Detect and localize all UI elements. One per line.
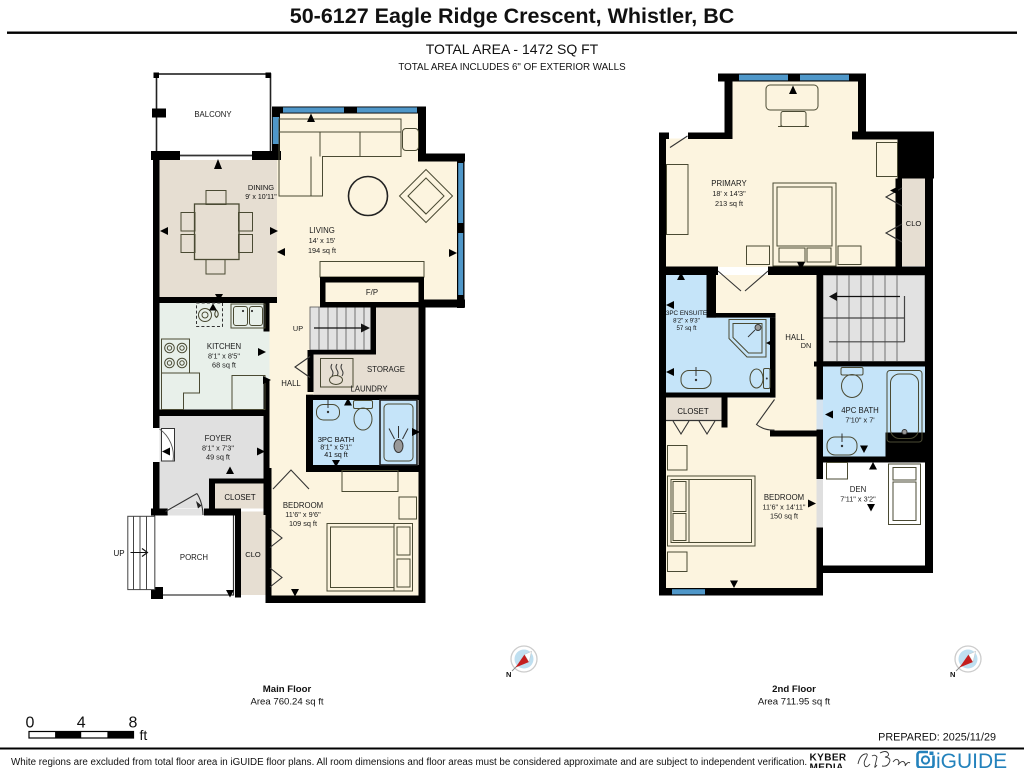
svg-text:7'10" x 7': 7'10" x 7' bbox=[845, 416, 875, 425]
svg-text:Area 711.95 sq ft: Area 711.95 sq ft bbox=[758, 697, 831, 708]
svg-text:11'6" x 9'6": 11'6" x 9'6" bbox=[285, 510, 321, 519]
svg-text:BEDROOM: BEDROOM bbox=[283, 501, 323, 510]
svg-text:PREPARED: 2025/11/29: PREPARED: 2025/11/29 bbox=[878, 732, 996, 744]
svg-text:3PC ENSUITE: 3PC ENSUITE bbox=[666, 310, 707, 317]
svg-text:DN: DN bbox=[801, 341, 812, 350]
svg-text:HALL: HALL bbox=[281, 379, 301, 388]
svg-text:14' x 15': 14' x 15' bbox=[309, 236, 336, 245]
svg-text:PORCH: PORCH bbox=[180, 553, 208, 562]
svg-text:4: 4 bbox=[77, 715, 86, 732]
svg-text:9' x 10'11": 9' x 10'11" bbox=[245, 194, 277, 201]
svg-text:MEDIA: MEDIA bbox=[810, 763, 844, 768]
svg-text:LAUNDRY: LAUNDRY bbox=[350, 385, 388, 394]
svg-text:41 sq ft: 41 sq ft bbox=[324, 450, 348, 459]
svg-text:68 sq ft: 68 sq ft bbox=[212, 361, 236, 370]
svg-text:Main Floor: Main Floor bbox=[263, 684, 312, 695]
svg-text:150 sq ft: 150 sq ft bbox=[770, 512, 798, 521]
svg-text:TOTAL AREA - 1472 SQ FT: TOTAL AREA - 1472 SQ FT bbox=[426, 41, 599, 57]
svg-text:N: N bbox=[506, 670, 511, 679]
svg-text:DEN: DEN bbox=[850, 485, 866, 494]
svg-text:iGUIDE: iGUIDE bbox=[936, 750, 1007, 768]
svg-text:LIVING: LIVING bbox=[309, 226, 335, 235]
svg-text:8'1" x 7'3": 8'1" x 7'3" bbox=[202, 444, 234, 453]
svg-text:11'6" x 14'11": 11'6" x 14'11" bbox=[763, 503, 806, 512]
svg-text:8'1" x 8'5": 8'1" x 8'5" bbox=[208, 352, 240, 361]
svg-text:213 sq ft: 213 sq ft bbox=[715, 199, 743, 208]
svg-text:UP: UP bbox=[113, 549, 124, 558]
svg-text:UP: UP bbox=[293, 324, 303, 333]
svg-text:STORAGE: STORAGE bbox=[367, 365, 405, 374]
svg-text:CLOSET: CLOSET bbox=[224, 493, 255, 502]
svg-text:18' x 14'3": 18' x 14'3" bbox=[712, 189, 746, 198]
svg-text:ft: ft bbox=[140, 727, 148, 743]
svg-text:CLO: CLO bbox=[245, 550, 261, 559]
svg-text:DINING: DINING bbox=[248, 183, 274, 192]
svg-text:4PC BATH: 4PC BATH bbox=[841, 406, 879, 415]
svg-text:KITCHEN: KITCHEN bbox=[207, 342, 241, 351]
svg-text:8'2" x 9'3": 8'2" x 9'3" bbox=[673, 318, 700, 325]
svg-text:TOTAL AREA INCLUDES 6" OF EXTE: TOTAL AREA INCLUDES 6" OF EXTERIOR WALLS bbox=[398, 62, 626, 73]
svg-text:0: 0 bbox=[26, 715, 35, 732]
svg-text:N: N bbox=[950, 670, 955, 679]
svg-text:FOYER: FOYER bbox=[205, 434, 232, 443]
svg-text:Area 760.24 sq ft: Area 760.24 sq ft bbox=[250, 697, 323, 708]
svg-text:50-6127 Eagle Ridge Crescent,: 50-6127 Eagle Ridge Crescent, Whistler, … bbox=[290, 4, 735, 28]
svg-text:7'11" x 3'2": 7'11" x 3'2" bbox=[840, 495, 876, 504]
svg-text:2nd Floor: 2nd Floor bbox=[772, 684, 816, 695]
svg-text:BALCONY: BALCONY bbox=[194, 110, 232, 119]
svg-text:49 sq ft: 49 sq ft bbox=[206, 453, 230, 462]
svg-text:8: 8 bbox=[129, 715, 138, 732]
svg-text:F/P: F/P bbox=[366, 288, 378, 297]
svg-text:109 sq ft: 109 sq ft bbox=[289, 519, 317, 528]
svg-text:BEDROOM: BEDROOM bbox=[764, 493, 804, 502]
svg-text:194 sq ft: 194 sq ft bbox=[308, 246, 336, 255]
svg-text:White regions are excluded fro: White regions are excluded from total fl… bbox=[11, 757, 807, 768]
svg-text:57 sq ft: 57 sq ft bbox=[677, 325, 697, 332]
svg-text:CLOSET: CLOSET bbox=[677, 407, 708, 416]
svg-text:PRIMARY: PRIMARY bbox=[711, 179, 747, 188]
svg-text:CLO: CLO bbox=[906, 219, 922, 228]
